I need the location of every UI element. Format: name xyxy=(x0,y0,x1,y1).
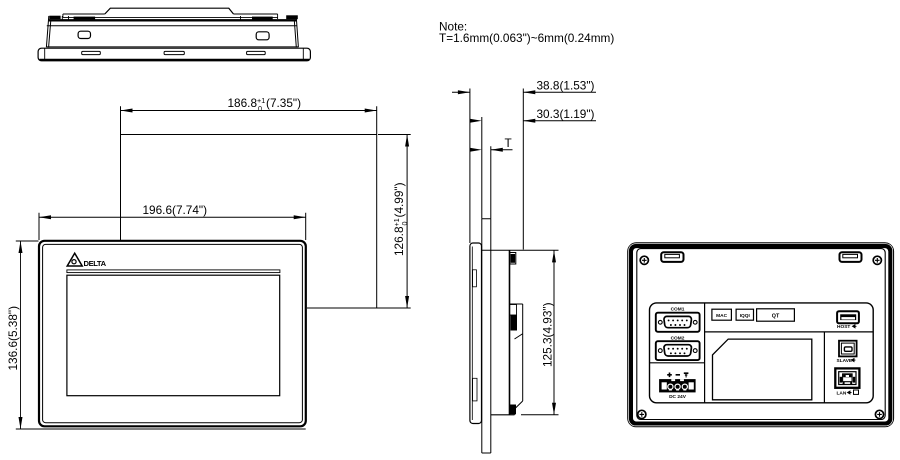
svg-text:DC 24V: DC 24V xyxy=(669,394,687,400)
svg-text:LAN: LAN xyxy=(837,390,847,396)
svg-text:HOST: HOST xyxy=(837,324,850,330)
svg-text:COM1: COM1 xyxy=(671,306,685,312)
svg-text:MAC: MAC xyxy=(716,313,727,319)
svg-text:QT: QT xyxy=(772,314,780,320)
svg-text:125.3(4.93"): 125.3(4.93") xyxy=(541,302,555,367)
svg-text:DELTA: DELTA xyxy=(84,259,107,268)
svg-text:38.8(1.53"): 38.8(1.53") xyxy=(537,78,595,92)
svg-text:SLAVE: SLAVE xyxy=(837,358,853,364)
svg-text:126.8+10(4.99"): 126.8+10(4.99") xyxy=(392,182,409,256)
svg-text:136.6(5.38"): 136.6(5.38") xyxy=(6,306,20,371)
svg-text:196.6(7.74"): 196.6(7.74") xyxy=(143,203,208,217)
svg-text:30.3(1.19"): 30.3(1.19") xyxy=(537,107,595,121)
svg-text:T: T xyxy=(505,136,512,150)
svg-text:T=1.6mm(0.063")~6mm(0.24mm): T=1.6mm(0.063")~6mm(0.24mm) xyxy=(439,31,614,45)
svg-text:IQQI: IQQI xyxy=(740,313,751,319)
